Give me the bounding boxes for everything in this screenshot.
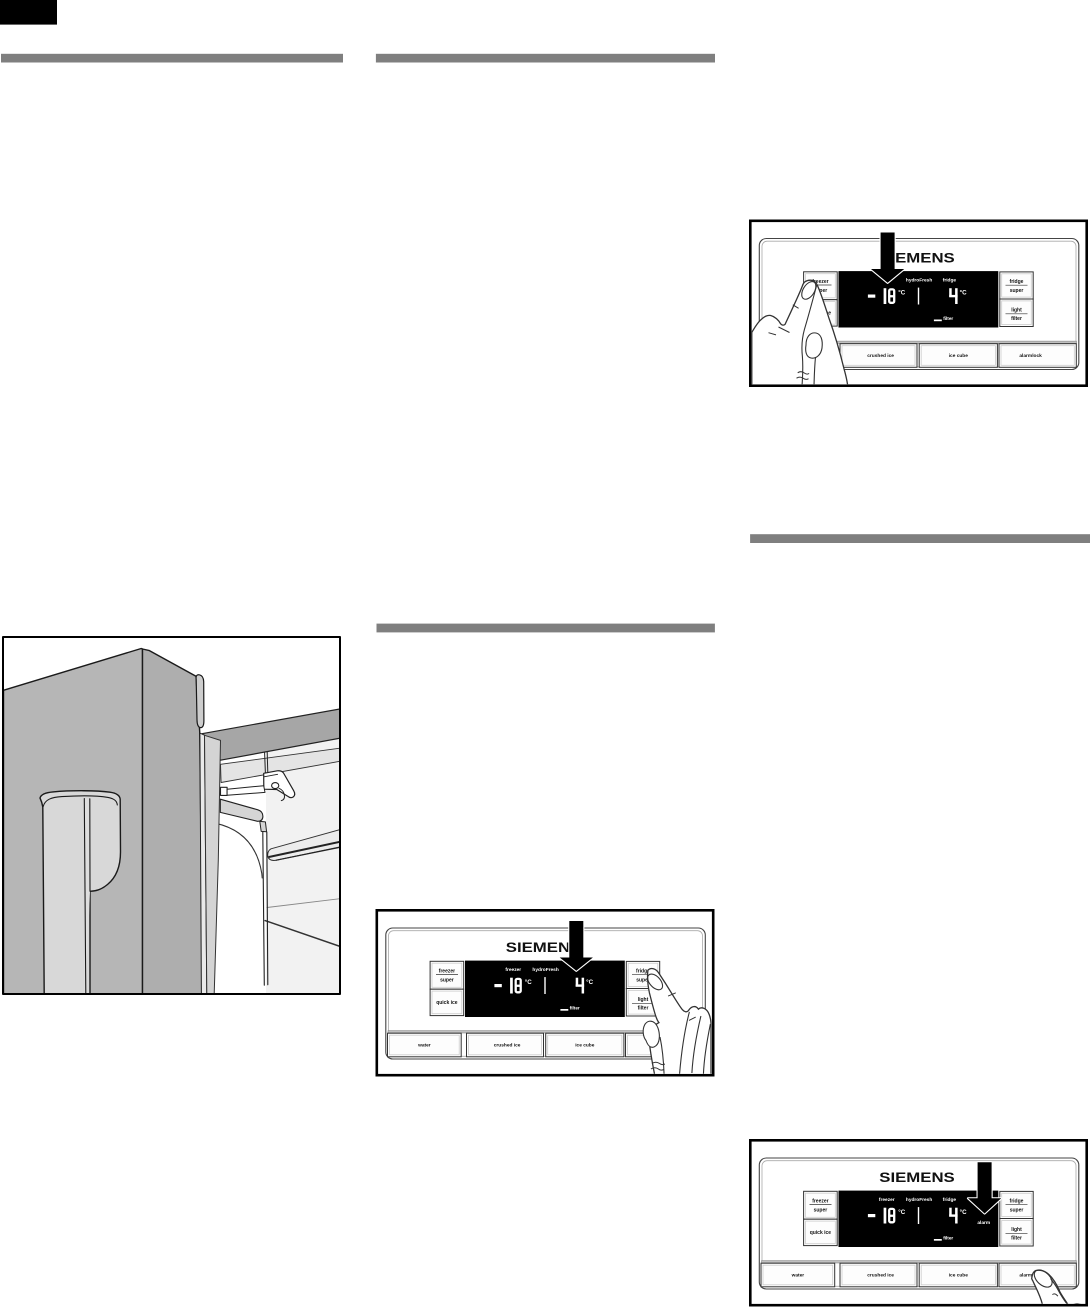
svg-text:water: water: [417, 1043, 431, 1049]
svg-text:crushed ice: crushed ice: [867, 353, 894, 359]
svg-text:filter: filter: [1011, 1236, 1022, 1242]
svg-text:super: super: [1010, 1208, 1024, 1214]
svg-text:freezer: freezer: [439, 969, 455, 975]
svg-text:super: super: [1010, 288, 1024, 294]
svg-text:quick ice: quick ice: [810, 1230, 832, 1236]
svg-text:filter: filter: [943, 316, 953, 321]
svg-text:freezer: freezer: [505, 967, 521, 973]
svg-text:fridge: fridge: [943, 1197, 957, 1203]
svg-text:°C: °C: [898, 1209, 905, 1216]
svg-text:freezer: freezer: [812, 1199, 828, 1205]
svg-text:°C: °C: [898, 290, 905, 297]
svg-text:°C: °C: [586, 979, 593, 986]
svg-text:filter: filter: [943, 1236, 953, 1241]
svg-text:filter: filter: [638, 1006, 649, 1012]
svg-text:crushed ice: crushed ice: [494, 1043, 521, 1049]
svg-text:ice cube: ice cube: [575, 1043, 595, 1049]
svg-text:light: light: [1011, 1227, 1022, 1233]
svg-text:alarm: alarm: [977, 1220, 990, 1226]
svg-text:freezer: freezer: [879, 1197, 895, 1203]
svg-text:alarmlock: alarmlock: [1019, 353, 1042, 359]
svg-text:super: super: [440, 977, 454, 983]
svg-text:°C: °C: [525, 979, 532, 986]
svg-text:fridge: fridge: [943, 278, 957, 284]
svg-text:filter: filter: [1011, 316, 1022, 322]
svg-text:°C: °C: [960, 290, 967, 297]
svg-text:crushed ice: crushed ice: [867, 1273, 894, 1279]
svg-text:ice cube: ice cube: [949, 1273, 969, 1279]
svg-text:light: light: [1011, 308, 1022, 314]
svg-text:hydroFresh: hydroFresh: [906, 1197, 932, 1203]
svg-text:SIEMENS: SIEMENS: [879, 1169, 955, 1185]
svg-text:super: super: [814, 1207, 828, 1213]
svg-text:hydroFresh: hydroFresh: [532, 967, 558, 973]
svg-text:fridge: fridge: [1010, 279, 1024, 285]
svg-text:water: water: [791, 1273, 805, 1279]
svg-text:quick ice: quick ice: [436, 1000, 458, 1006]
svg-text:hydroFresh: hydroFresh: [906, 278, 932, 284]
svg-text:ice cube: ice cube: [949, 353, 969, 359]
svg-text:°C: °C: [960, 1209, 967, 1216]
svg-text:fridge: fridge: [1010, 1199, 1024, 1205]
svg-text:filter: filter: [570, 1006, 580, 1011]
svg-text:light: light: [638, 997, 649, 1003]
